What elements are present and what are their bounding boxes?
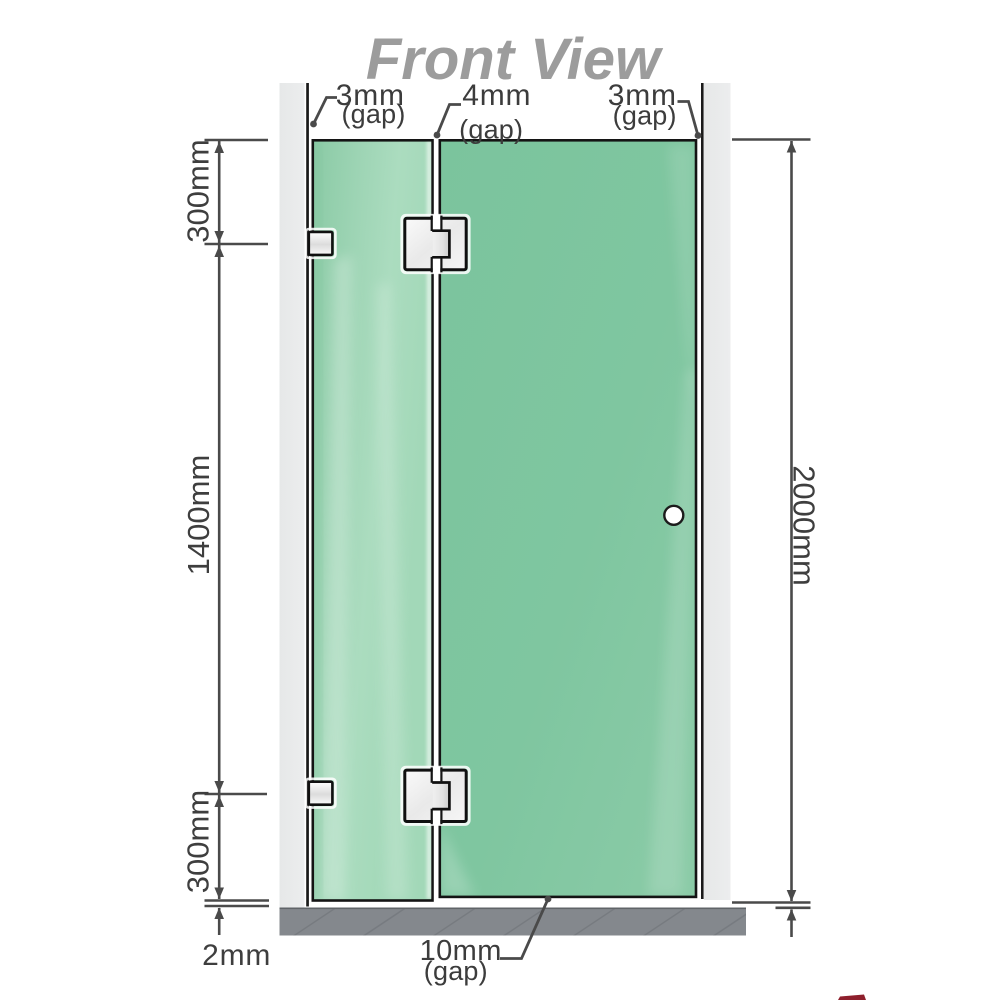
svg-text:(gap): (gap) [424, 956, 488, 986]
svg-text:2000mm: 2000mm [787, 465, 822, 586]
svg-text:(gap): (gap) [459, 115, 523, 145]
svg-text:1400mm: 1400mm [181, 455, 216, 576]
svg-text:(gap): (gap) [613, 101, 677, 131]
svg-text:300mm: 300mm [181, 139, 216, 242]
svg-text:2mm: 2mm [202, 939, 271, 972]
svg-text:300mm: 300mm [181, 790, 216, 893]
svg-text:(gap): (gap) [341, 99, 405, 129]
svg-text:4mm: 4mm [462, 79, 531, 112]
